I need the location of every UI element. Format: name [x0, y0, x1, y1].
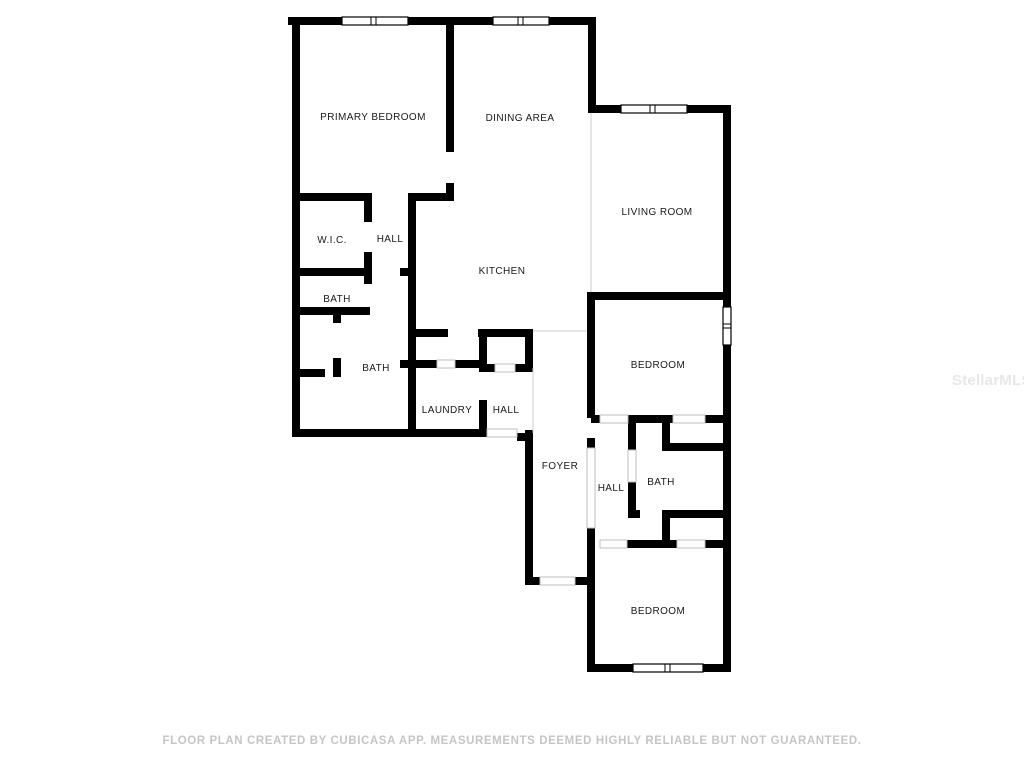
hall-foyer-opening: [487, 429, 517, 437]
room-label-kitchen: KITCHEN: [479, 266, 526, 277]
closet-opening-top: [673, 415, 705, 423]
room-label-laundry: LAUNDRY: [422, 405, 472, 416]
room-label-bedroom-bottom: BEDROOM: [631, 606, 685, 617]
room-label-dining-area: DINING AREA: [486, 113, 555, 124]
entry-door-opening: [540, 577, 575, 585]
closet-door-opening: [495, 364, 515, 372]
room-label-bath-1: BATH: [323, 294, 351, 305]
floorplan-svg: PRIMARY BEDROOM DINING AREA LIVING ROOM …: [0, 0, 1024, 768]
room-label-foyer: FOYER: [542, 461, 578, 472]
room-label-hall-2: HALL: [493, 405, 520, 416]
window-primary-bedroom: [342, 17, 408, 25]
foyer-hall-opening: [587, 448, 595, 528]
laundry-door-opening: [437, 360, 455, 368]
door-openings: [437, 360, 705, 585]
disclaimer-text: FLOOR PLAN CREATED BY CUBICASA APP. MEAS…: [0, 735, 1024, 747]
window-bedroom-bottom: [633, 664, 703, 672]
room-label-living-room: LIVING ROOM: [621, 207, 692, 218]
room-label-wic: W.I.C.: [317, 235, 347, 246]
window-living-room: [621, 105, 687, 113]
room-label-bath-2: BATH: [362, 363, 390, 374]
floorplan-canvas: PRIMARY BEDROOM DINING AREA LIVING ROOM …: [0, 0, 1024, 768]
room-label-bath-3: BATH: [647, 477, 675, 488]
closet-opening-bottom: [677, 540, 705, 548]
bedroom2-door-opening: [600, 540, 627, 548]
room-label-hall-3: HALL: [598, 483, 625, 494]
room-label-bedroom-mid: BEDROOM: [631, 360, 685, 371]
bedroom-door-opening: [600, 415, 628, 423]
stellar-mls-watermark: StellarMLS: [952, 372, 1024, 389]
room-label-primary-bedroom: PRIMARY BEDROOM: [320, 112, 426, 123]
room-label-hall-1: HALL: [377, 234, 404, 245]
window-bedroom-mid: [723, 307, 731, 345]
window-dining: [493, 17, 549, 25]
bath-door-opening: [628, 450, 636, 482]
